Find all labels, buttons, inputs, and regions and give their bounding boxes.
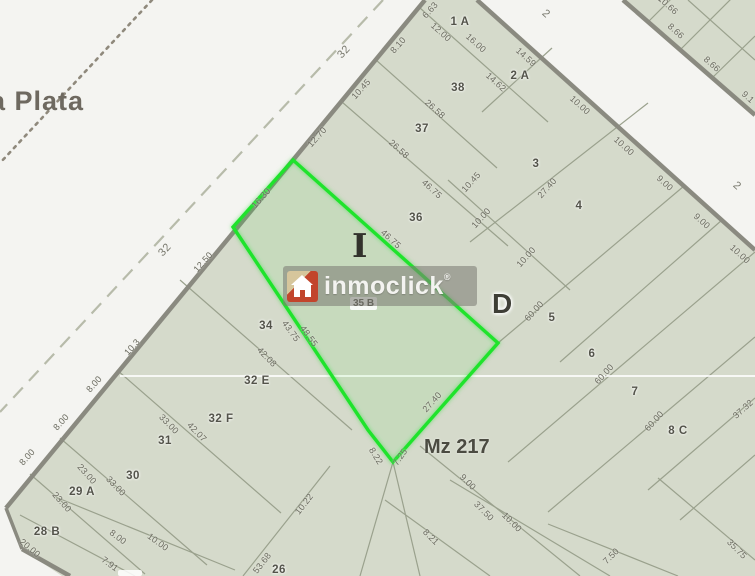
measurement-label: 33.00 (104, 474, 128, 498)
parcel-label: 6 (589, 348, 596, 360)
measurement-label: 10.00 (500, 510, 524, 534)
measurement-label: 42.08 (255, 345, 279, 369)
house-icon (287, 271, 318, 302)
measurement-label: 10.00 (514, 245, 537, 269)
measurement-label: 8.00 (108, 528, 129, 547)
measurement-label: 10.00 (728, 242, 752, 265)
measurement-label: 42.07 (185, 420, 209, 444)
parcel-label: 29 A (69, 486, 95, 498)
block-number-label: Mz 217 (424, 436, 490, 459)
inmoclick-watermark: inmoclick® (283, 266, 477, 306)
parcel-label: 30 (126, 470, 140, 482)
cadastral-map-canvas[interactable]: 6.638.1010.4512.7016.3012.5010.38.008.00… (0, 0, 755, 576)
measurement-label: 8.21 (421, 527, 441, 547)
measurement-label: 7.50 (601, 546, 621, 566)
parcel-label: 5 (549, 312, 556, 324)
measurement-label: 35.75 (725, 537, 749, 561)
measurement-label: 60.00 (592, 362, 615, 386)
parcel-label: 7 (632, 386, 639, 398)
measurement-label: 8.66 (666, 21, 686, 41)
measurement-label: 14.62 (484, 70, 508, 93)
measurement-label: 8.66 (702, 54, 722, 74)
measurement-label: 26.58 (387, 137, 411, 160)
parcel-label: 8 C (668, 425, 687, 437)
measurement-label: 53.68 (251, 551, 273, 576)
measurement-label: 9.1 (740, 89, 755, 105)
cut-off-parcel-badge (118, 570, 142, 576)
parcel-label: 2 A (511, 70, 530, 82)
parcel-label: 32 F (208, 413, 233, 425)
measurement-label: 33.00 (157, 412, 181, 436)
measurement-label: 9.00 (655, 173, 675, 193)
parcel-label: 37 (415, 123, 429, 135)
measurement-label: 10.00 (146, 531, 171, 553)
measurement-label: 10.22 (293, 492, 315, 517)
measurement-label: 10.45 (459, 170, 482, 194)
parcel-label: 3 (533, 158, 540, 170)
measurement-label: 37.32 (731, 397, 755, 420)
measurement-label: 46.75 (420, 177, 444, 200)
parcel-label: 26 (272, 564, 286, 576)
measurement-label: 9.00 (458, 472, 478, 492)
parcel-label: 36 (409, 212, 423, 224)
zone-letter-i: I (352, 226, 367, 265)
measurement-label: 37.50 (472, 499, 496, 523)
highlighted-parcel-outline[interactable] (233, 160, 498, 462)
measurement-label: 60.00 (642, 409, 665, 433)
parcel-label: 38 (451, 82, 465, 94)
city-name-label: a Plata (0, 86, 84, 117)
measurement-label: 60.00 (522, 299, 545, 323)
measurement-label: 27.40 (535, 176, 558, 200)
measurement-label: 12.00 (429, 20, 453, 43)
measurement-label: 10.66 (656, 0, 680, 17)
parcel-label: 32 E (244, 375, 270, 387)
parcel-label: 31 (158, 435, 172, 447)
watermark-brand-text: inmoclick® (324, 272, 451, 301)
registered-mark: ® (444, 272, 451, 282)
parcel-label: 1 A (451, 16, 470, 28)
parcel-label: 28 B (34, 526, 60, 538)
measurement-label: 16.00 (464, 31, 488, 54)
measurement-label: 23.00 (75, 462, 98, 486)
parcel-label: 34 (259, 320, 273, 332)
parcel-label: 4 (576, 200, 583, 212)
measurement-label: 9.00 (692, 211, 712, 231)
measurement-label: 26.58 (423, 97, 447, 120)
zone-letter-d: D (492, 288, 512, 320)
measurement-label: 10.00 (469, 206, 492, 230)
